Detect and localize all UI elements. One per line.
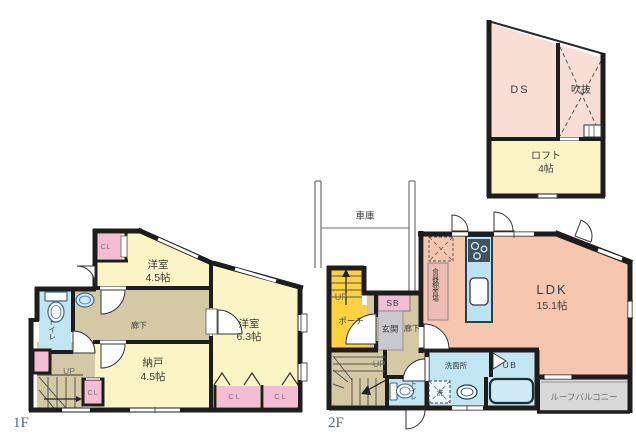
f2-toilet-door: [406, 410, 425, 429]
ladder-icon: [584, 125, 601, 137]
loft-name-label: ロフト: [531, 151, 561, 162]
f2-stairs-upper-label: UP: [335, 292, 348, 302]
f1-closet-top-label: CL: [101, 244, 112, 251]
f1-window-box-2: [301, 363, 307, 381]
loft-size-label: 4帖: [538, 162, 554, 175]
f1-closet-right2-label: CL: [274, 392, 288, 401]
f1-room-east-door-leaf: [206, 309, 217, 334]
shoe-box-label: SB: [386, 298, 399, 308]
f1-room-west-outer-door: [77, 266, 95, 284]
ldk-window-arc-1: [452, 215, 468, 231]
f1-section: 洋室 4.5帖 洋室 6.3帖 納戸 4.5帖 廊下 CL CL CL CL U…: [13, 229, 307, 431]
f1-storage-name: 納戸: [143, 356, 164, 369]
f1-toilet-label: トイレ: [48, 318, 57, 341]
washroom-label: 洗面所: [445, 360, 468, 370]
f1-closet-small-label: CL: [88, 390, 99, 397]
f2-section: 車庫: [315, 181, 633, 431]
f1-room-east-size: 6.3帖: [236, 330, 262, 343]
f2-stairs-lower-label: UP: [373, 359, 386, 369]
f2-floor-label: 2F: [328, 415, 344, 431]
f1-closet-door: [121, 236, 127, 257]
bathtub-icon: [490, 379, 533, 403]
ldk-size-label: 15.1帖: [537, 299, 568, 312]
f1-storage-size: 4.5帖: [140, 370, 166, 383]
porch-label: ポーチ: [338, 316, 364, 326]
f1-hallway-label: 廊下: [131, 320, 147, 330]
roof-balcony-label: ルーフバルコニー: [550, 392, 617, 402]
garage-label: 車庫: [355, 210, 375, 222]
f1-window-box-1: [301, 314, 307, 332]
ds-label: DS: [510, 84, 529, 96]
f1-closet-right1-label: CL: [228, 392, 242, 401]
f1-understair-closet: [33, 350, 50, 373]
basin-icon: [76, 293, 94, 307]
f1-room-west-name: 洋室: [148, 258, 169, 271]
f1-room-east-name: 洋室: [239, 317, 260, 330]
void-label: 吹抜: [571, 83, 591, 96]
stove-icon: [468, 239, 490, 262]
entrance-label: 玄関: [381, 324, 398, 334]
floor-plan: DS 吹抜 ロフト 4帖: [0, 0, 636, 433]
f1-room-west-size: 4.5帖: [145, 271, 171, 284]
ds-room-floor: [489, 23, 557, 139]
unit-bath-label: UB: [503, 360, 518, 370]
f1-hallway-floor: [73, 288, 211, 342]
ldk-window-arc-2: [494, 212, 513, 231]
f1-stairs-label: UP: [63, 366, 75, 376]
f1-floor-label: 1F: [13, 415, 29, 431]
washer-label: 洗: [437, 388, 444, 397]
f2-hallway-label: 廊下: [404, 323, 420, 333]
kitchen-sink-icon: [470, 278, 488, 305]
ldk-window-arc-3: [575, 220, 597, 242]
ldk-name-label: LDK: [536, 282, 567, 297]
washroom-sink-icon: [457, 385, 477, 399]
loft-section: DS 吹抜 ロフト 4帖: [487, 20, 605, 199]
f1-stairs-floor: [37, 375, 83, 409]
